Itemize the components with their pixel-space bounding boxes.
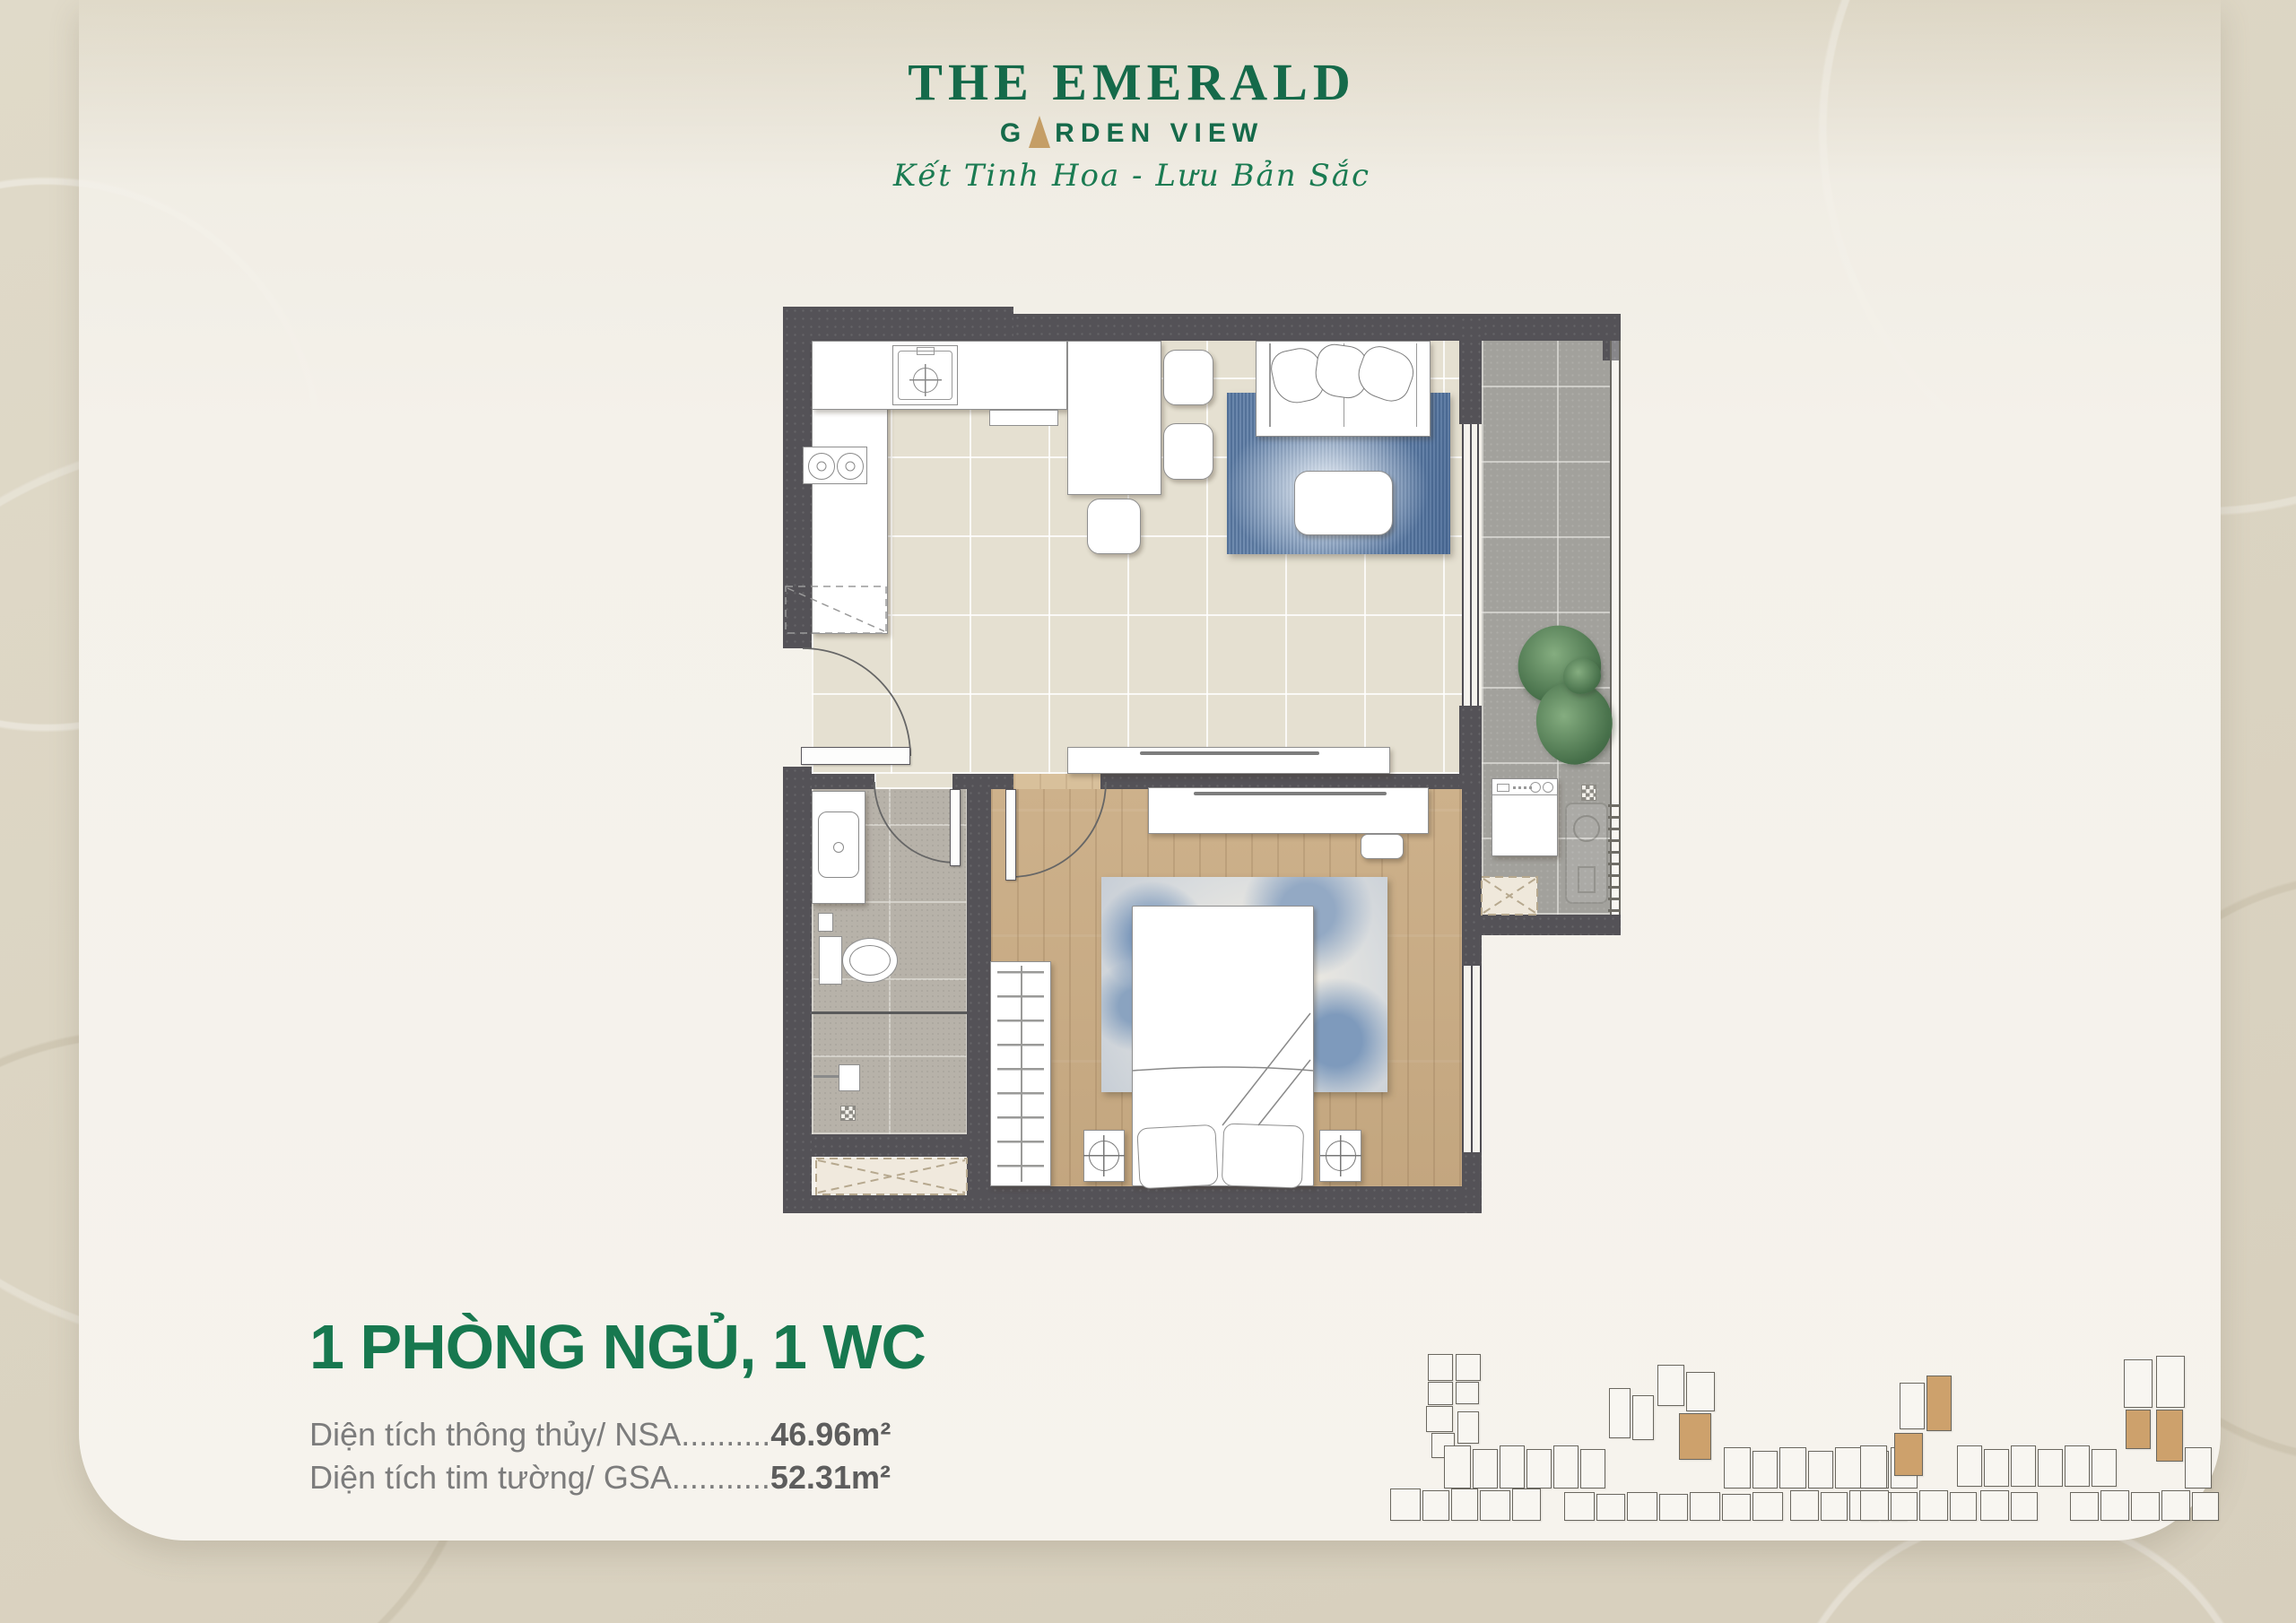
unit-title: 1 PHÒNG NGỦ, 1 WC (309, 1311, 926, 1383)
bedroom-window (1462, 966, 1482, 1152)
toilet-tank (819, 936, 842, 985)
tv-icon (1140, 751, 1319, 755)
keyplan-unit (2124, 1359, 2152, 1408)
spec-label: Diện tích thông thủy/ NSA (309, 1416, 681, 1453)
keyplan-unit (1500, 1445, 1525, 1488)
keyplan-unit (2161, 1490, 2190, 1521)
keyplan-unit (1512, 1488, 1541, 1521)
keyplan-unit (1657, 1365, 1684, 1406)
keyplan-unit (1473, 1449, 1498, 1488)
keyplan-unit (2185, 1447, 2212, 1488)
wall-divider-seg1 (812, 774, 874, 789)
bathroom-vanity (812, 791, 865, 904)
keyplan-unit (2070, 1492, 2099, 1521)
shower-head (839, 1064, 860, 1091)
site-keyplan-left (1388, 1352, 1926, 1527)
brand-subtitle: G RDEN VIEW (863, 116, 1401, 147)
keyplan-unit (1821, 1492, 1848, 1521)
keyplan-unit (1456, 1354, 1481, 1381)
coffee-table (1294, 471, 1393, 535)
kitchen-shelf (989, 410, 1058, 426)
keyplan-unit-highlighted (1926, 1376, 1952, 1431)
keyplan-unit (1984, 1449, 2009, 1487)
brand-subtitle-g: G (1000, 120, 1027, 147)
keyplan-unit (1686, 1372, 1715, 1411)
keyplan-unit (1480, 1490, 1510, 1521)
balcony-railing-hatch (1608, 804, 1621, 912)
dining-chair (1087, 499, 1141, 554)
threshold-bathroom-door (874, 774, 952, 789)
keyplan-unit (1919, 1490, 1948, 1521)
bedroom-tv-console (1148, 787, 1429, 834)
site-keyplan-right (1855, 1352, 2218, 1527)
keyplan-unit (1808, 1451, 1833, 1488)
spec-dots: ........... (672, 1459, 770, 1496)
keyplan-unit (1428, 1354, 1453, 1381)
keyplan-unit (1860, 1490, 1889, 1521)
kitchen-sink (892, 345, 958, 405)
keyplan-unit (1632, 1395, 1654, 1440)
sliding-door-balcony (1462, 424, 1479, 706)
keyplan-unit (1752, 1492, 1783, 1521)
keyplan-unit (1428, 1382, 1453, 1405)
keyplan-unit (2131, 1492, 2160, 1521)
keyplan-unit (1950, 1492, 1977, 1521)
spec-row-gsa: Diện tích tim tường/ GSA...........52.31… (309, 1456, 926, 1499)
floor-plan (783, 296, 1650, 1248)
keyplan-unit (1900, 1383, 1925, 1429)
keyplan-unit (2092, 1449, 2117, 1487)
keyplan-unit-highlighted (1894, 1433, 1923, 1476)
shaft-void (816, 1159, 967, 1194)
keyplan-unit (1980, 1490, 2009, 1521)
toilet-bowl (842, 938, 898, 983)
wall-balcony-pillar (1459, 316, 1482, 424)
sink-tap (917, 347, 935, 355)
bedroom-stool (1361, 834, 1404, 859)
keyplan-unit (2038, 1449, 2063, 1487)
tv-icon (1194, 792, 1387, 795)
keyplan-unit (2011, 1445, 2036, 1487)
sink-faucet-icon (913, 368, 938, 393)
wall-left-lower (783, 767, 812, 1213)
keyplan-unit (1580, 1449, 1605, 1488)
bed-pillow (1136, 1124, 1218, 1190)
brand-subtitle-rest: RDEN VIEW (1055, 120, 1264, 147)
shower-arm (813, 1075, 839, 1078)
wall-below-slider (1459, 706, 1482, 789)
nightstand-left (1083, 1130, 1125, 1182)
brand-logo: THE EMERALD G RDEN VIEW Kết Tinh Hoa - L… (863, 56, 1401, 194)
keyplan-unit (1724, 1447, 1751, 1488)
shower-partition (812, 1011, 967, 1014)
dining-chair (1163, 423, 1213, 480)
spec-label: Diện tích tim tường/ GSA (309, 1459, 672, 1496)
wall-bedroom-right (1462, 789, 1482, 966)
nightstand-right (1319, 1130, 1361, 1182)
keyplan-unit (1609, 1388, 1631, 1438)
keyplan-unit (1564, 1492, 1595, 1521)
keyplan-unit (1790, 1490, 1819, 1521)
wall-top-left (783, 307, 1013, 341)
keyplan-unit (1779, 1447, 1806, 1488)
burner-icon (808, 453, 835, 480)
shaft-void-x (818, 1160, 965, 1193)
keyplan-unit (1451, 1488, 1478, 1521)
keyplan-unit (1456, 1382, 1479, 1404)
keyplan-unit (2156, 1356, 2185, 1408)
keyplan-unit-highlighted (2126, 1410, 2151, 1449)
bedside-lamp-icon (1326, 1141, 1356, 1171)
wall-balcony-bottom (1480, 915, 1621, 935)
keyplan-unit (2100, 1490, 2129, 1521)
keyplan-unit (1444, 1445, 1471, 1488)
unit-specs: Diện tích thông thủy/ NSA..........46.96… (309, 1413, 926, 1499)
keyplan-unit (1722, 1494, 1751, 1521)
toilet-flush-box (818, 913, 833, 932)
keyplan-unit-highlighted (1679, 1413, 1711, 1460)
keyplan-unit (1390, 1488, 1421, 1521)
potted-plant (1511, 626, 1619, 792)
brand-tagline: Kết Tinh Hoa - Lưu Bản Sắc (863, 158, 1401, 194)
floor-drain (840, 1106, 856, 1121)
wall-bathroom-bedroom (967, 789, 991, 1195)
dining-chair (1163, 350, 1213, 405)
spec-value: 52.31m² (770, 1459, 891, 1496)
bedside-lamp-icon (1089, 1141, 1119, 1171)
brand-title: THE EMERALD (863, 56, 1401, 110)
bedroom-door-leaf (1005, 789, 1016, 881)
spec-value: 46.96m² (770, 1416, 891, 1453)
gold-triangle-a-icon (1029, 116, 1050, 148)
wall-divider-seg2 (952, 774, 1013, 789)
faucet-icon (833, 842, 844, 853)
washer-display (1497, 784, 1509, 792)
keyplan-unit (1957, 1445, 1982, 1487)
keyplan-unit (1553, 1445, 1578, 1488)
keyplan-unit (2011, 1492, 2038, 1521)
brochure-page: { "brand": { "title": "THE EMERALD", "su… (0, 0, 2296, 1623)
wardrobe-divider (1021, 966, 1022, 1182)
keyplan-unit (1422, 1490, 1449, 1521)
keyplan-unit (1690, 1492, 1720, 1521)
entry-door-leaf (801, 747, 910, 765)
keyplan-unit (1860, 1445, 1887, 1488)
keyplan-unit (1627, 1492, 1657, 1521)
spec-dots: .......... (681, 1416, 770, 1453)
keyplan-unit (1752, 1451, 1778, 1488)
keyplan-unit (1457, 1411, 1479, 1444)
unit-info: 1 PHÒNG NGỦ, 1 WC Diện tích thông thủy/ … (309, 1311, 926, 1499)
keyplan-unit-highlighted (2156, 1410, 2183, 1462)
keyplan-unit (1426, 1406, 1453, 1432)
spec-row-nsa: Diện tích thông thủy/ NSA..........46.96… (309, 1413, 926, 1456)
sofa (1256, 341, 1431, 437)
keyplan-unit (1659, 1494, 1688, 1521)
sofa-pillow (1352, 341, 1420, 406)
sofa-arm (1269, 343, 1271, 427)
bathroom-door-leaf (950, 789, 961, 866)
wall-bathroom-bottom-band (812, 1134, 967, 1157)
keyplan-unit (1526, 1449, 1552, 1488)
keyplan-unit (2065, 1445, 2090, 1487)
ac-unit-outline (1565, 803, 1608, 904)
sofa-arm (1416, 343, 1418, 427)
cooktop (803, 447, 867, 484)
burner-icon (837, 453, 864, 480)
wardrobe (990, 961, 1051, 1186)
dining-table (1067, 341, 1161, 495)
threshold-bedroom-door (1013, 774, 1100, 789)
bed-pillow (1222, 1123, 1304, 1188)
wall-bedroom-right-corner (1462, 1152, 1482, 1213)
wall-bottom-bedroom (991, 1186, 1462, 1213)
keyplan-unit (1596, 1494, 1625, 1521)
living-tv-console (1067, 747, 1390, 774)
keyplan-unit (2192, 1492, 2219, 1521)
wall-bottom-bathroom (783, 1195, 991, 1213)
keyplan-unit (1891, 1492, 1918, 1521)
wall-top-right (1013, 314, 1621, 341)
